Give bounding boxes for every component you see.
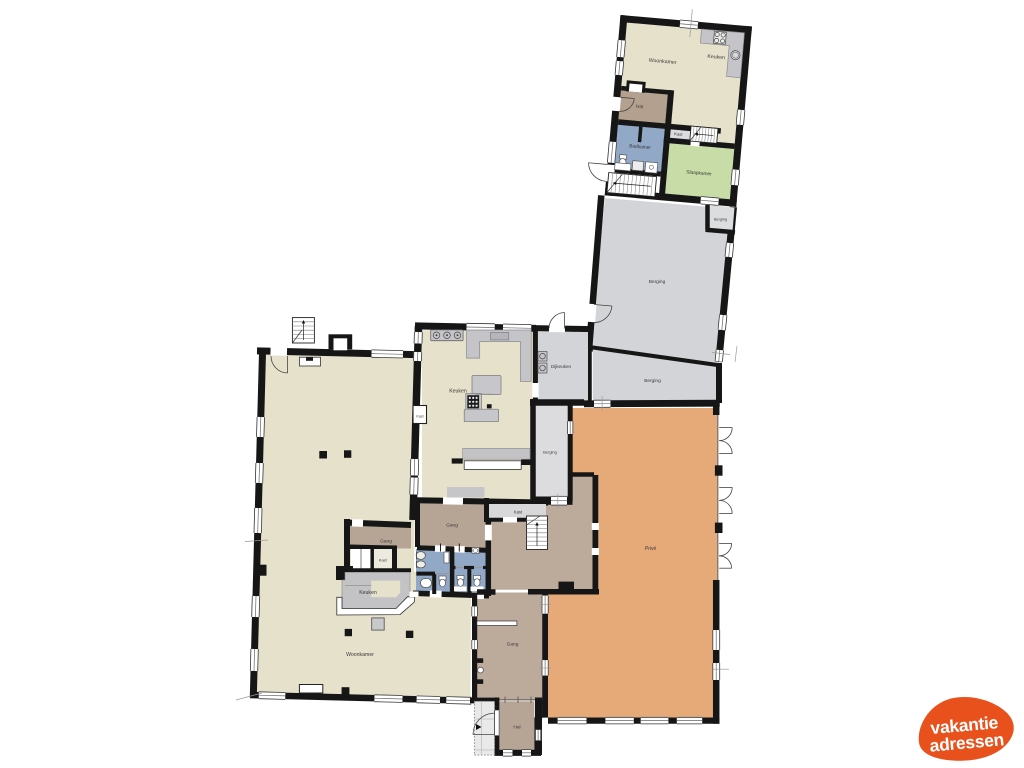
svg-text:Kast: Kast [674,131,684,137]
svg-text:Berging: Berging [644,378,661,384]
svg-text:Berging: Berging [714,218,727,222]
svg-text:Woonkamer: Woonkamer [346,652,374,658]
svg-text:Berging: Berging [649,279,666,285]
svg-text:Kast: Kast [379,558,388,563]
svg-text:Gang: Gang [380,539,392,545]
svg-text:Kast: Kast [514,510,523,515]
svg-text:Hal: Hal [513,725,520,731]
svg-text:Kast: Kast [416,415,423,419]
svg-text:Gang: Gang [446,523,458,529]
svg-text:Keuken: Keuken [359,590,377,596]
svg-text:Hal: Hal [636,104,644,111]
svg-text:Privé: Privé [645,546,657,552]
svg-text:Keuken: Keuken [449,389,467,395]
svg-text:Gang: Gang [507,642,519,648]
svg-text:Dijkeuken: Dijkeuken [551,364,572,369]
svg-text:Berging: Berging [543,450,557,455]
